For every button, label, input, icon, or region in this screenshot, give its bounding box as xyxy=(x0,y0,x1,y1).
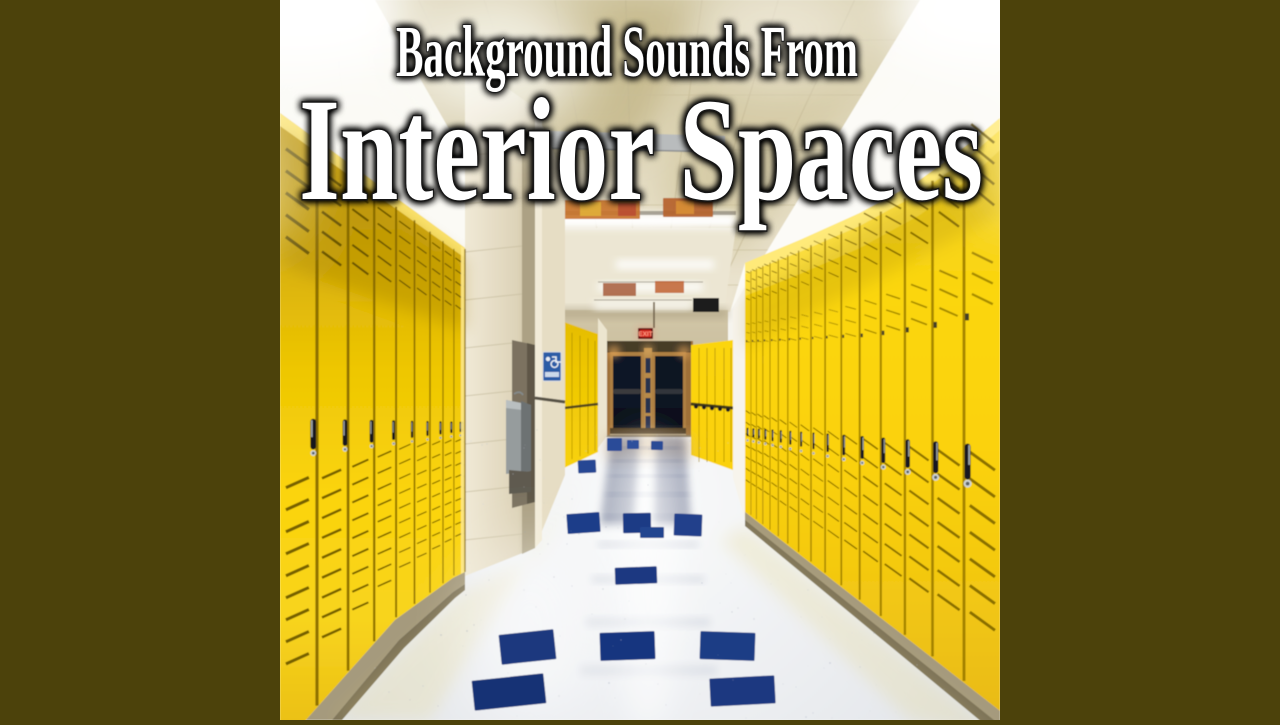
svg-text:Interior Spaces: Interior Spaces xyxy=(299,68,983,231)
svg-text:EXIT: EXIT xyxy=(638,331,652,338)
